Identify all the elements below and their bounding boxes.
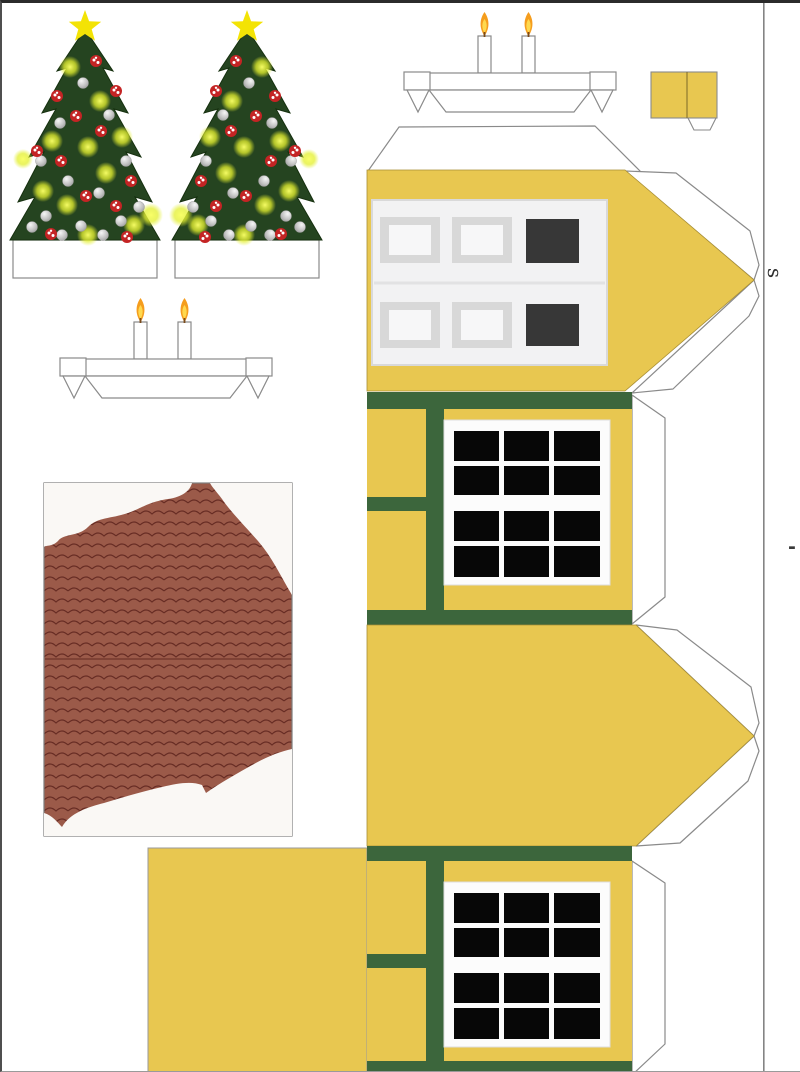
edge-dash-mark: - [788, 536, 796, 558]
candle-holder-piece-top [404, 12, 616, 112]
timber-wall-upper [367, 392, 632, 625]
papercraft-sheet-page: s - [0, 0, 800, 1072]
christmas-tree-piece-1 [10, 10, 163, 278]
door-dark-pane [526, 219, 579, 263]
christmas-tree-piece-2 [169, 10, 322, 278]
candle-holder-piece-left [60, 298, 272, 398]
door-panel [372, 200, 607, 365]
side-wall-square-piece [148, 848, 367, 1072]
page-margin-line [763, 3, 765, 1072]
roof-panel-piece [44, 483, 292, 836]
margin-letter: s [762, 265, 788, 281]
door-dark-pane [526, 304, 579, 346]
chimney-box-piece [651, 72, 717, 130]
multi-pane-window-upper [444, 420, 610, 585]
timber-wall-lower [367, 846, 632, 1072]
multi-pane-window-lower [444, 882, 610, 1047]
sheet-canvas [2, 3, 800, 1072]
house-body-template [367, 126, 759, 1072]
